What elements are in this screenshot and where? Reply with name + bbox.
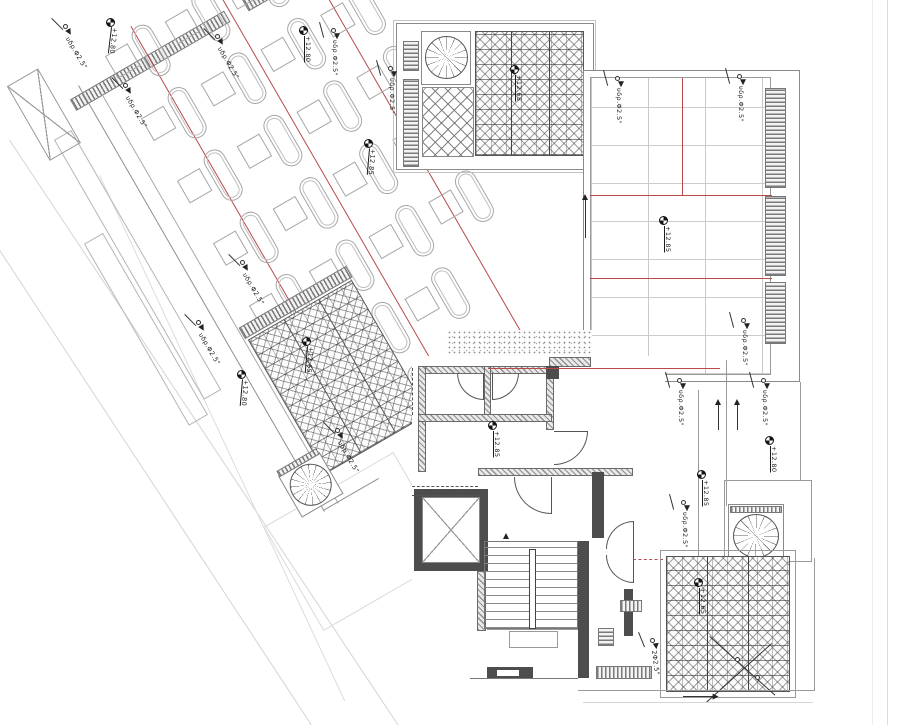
wall-dark (578, 541, 589, 678)
flow-arrow-head (734, 399, 740, 405)
wall-dark (624, 589, 633, 636)
drain-arrow-icon (684, 505, 690, 511)
sun-lounger (259, 111, 306, 170)
drain-arrow-icon (334, 33, 340, 39)
flow-arrow (585, 200, 586, 238)
deck-table (296, 99, 332, 135)
terrace-line (800, 382, 801, 480)
floor-plan-canvas: +12.80+12.80+12.85+12.65+12.85+12.80+12.… (0, 0, 900, 725)
level-label: +12.85 (702, 480, 709, 506)
drain-label: υδρ.Φ2.5" (677, 390, 684, 426)
level-marker-icon (765, 436, 774, 445)
drain-arrow-icon (740, 79, 746, 85)
drain-arrow-icon (744, 323, 750, 329)
drain-label: υδρ.Φ2.5" (737, 86, 744, 122)
pergola-grid (666, 556, 790, 692)
drain-label: υδρ.Φ2.5" (331, 40, 338, 76)
level-marker-icon (299, 26, 308, 35)
wall-hatched (418, 414, 552, 422)
boundary-line (583, 702, 813, 703)
page-edge-line (887, 0, 888, 725)
pergola-beam-line (511, 32, 512, 155)
sun-lounger (236, 208, 283, 267)
level-marker-icon (106, 18, 115, 27)
louvre-band (765, 196, 786, 276)
level-label: +12.65 (515, 75, 522, 101)
level-marker-icon (697, 470, 706, 479)
door-leaf (492, 373, 493, 400)
level-marker-icon (694, 578, 703, 587)
sun-lounger (200, 145, 247, 204)
sun-lounger (164, 83, 211, 142)
flow-arrow (737, 404, 738, 430)
level-label: +12.65 (699, 588, 706, 614)
spiral-stair (421, 31, 471, 85)
wall-hatched (484, 366, 491, 416)
deck-table (237, 133, 273, 169)
level-marker-icon (302, 337, 311, 346)
drain-arrow-icon (653, 643, 660, 650)
level-label: +12.80 (240, 379, 249, 406)
door-leaf (551, 477, 552, 514)
deck-table (356, 64, 392, 100)
flow-arrow (683, 696, 715, 697)
building-edge-line (470, 678, 578, 679)
stair-stringer (529, 549, 536, 629)
deck-table (428, 189, 464, 225)
drain-outlet-icon (196, 320, 201, 325)
louvre-band (403, 41, 419, 71)
level-label: +12.85 (367, 148, 376, 175)
louvre-band (403, 79, 419, 167)
trellis-panel (422, 87, 474, 157)
flow-arrow-head (713, 694, 719, 700)
drain-leader-line (669, 494, 674, 510)
pergola-grid (475, 31, 584, 156)
pergola-beam-line (707, 557, 708, 691)
dashed-line (412, 495, 478, 496)
drain-outlet-icon (755, 675, 760, 680)
spiral-stair-icon (425, 36, 468, 79)
louvre-band (598, 628, 614, 646)
deck-table (260, 37, 296, 73)
drain-label: υδρ.Φ2.5" (741, 330, 748, 366)
dashed-line (412, 486, 478, 487)
drain-label: υδρ.Φ2.5" (761, 390, 768, 426)
drain-arrow-icon (391, 71, 397, 77)
level-marker-icon (237, 370, 246, 379)
drain-outlet-icon (650, 638, 655, 643)
louvre-band (620, 600, 642, 612)
boundary-line (814, 558, 815, 691)
deck-table (332, 161, 368, 197)
deck-table (368, 224, 404, 260)
flow-arrow (718, 404, 719, 430)
sun-lounger (391, 201, 438, 260)
level-label: +12.80 (304, 36, 311, 62)
deck-table (273, 196, 309, 232)
roof-block (396, 23, 594, 170)
sun-lounger (451, 167, 498, 226)
red-joint-line (682, 78, 683, 195)
red-joint-line (590, 278, 772, 279)
level-marker-icon (364, 139, 373, 148)
drain-arrow-icon (680, 383, 686, 389)
drain-outlet-icon (240, 260, 245, 265)
level-marker-icon (510, 65, 519, 74)
dashed-line (412, 368, 413, 415)
stair-landing-line (487, 629, 578, 630)
drain-label: υδρ.Φ2.5" (615, 88, 622, 124)
sun-lounger (319, 76, 366, 135)
stair-landing (509, 631, 558, 648)
sun-lounger (223, 48, 270, 107)
red-joint-line (488, 368, 720, 369)
level-label: +12.85 (493, 431, 500, 457)
door-leaf (554, 431, 588, 432)
level-label: +12.80 (770, 446, 777, 472)
drain-outlet-icon (123, 83, 128, 88)
door-leaf (633, 521, 634, 583)
sun-lounger (427, 263, 474, 322)
door-leaf (483, 373, 484, 400)
drain-outlet-icon (735, 657, 740, 662)
wall-dark (592, 472, 604, 538)
level-label: +12.85 (664, 226, 671, 252)
deck-table (177, 168, 213, 204)
drain-label: υδρ.Φ2.5" (681, 512, 688, 548)
red-joint-line (590, 195, 772, 196)
page-edge-line (872, 0, 873, 725)
level-marker-icon (659, 216, 668, 225)
drain-arrow-icon (618, 81, 624, 87)
drain-outlet-icon (63, 24, 68, 29)
boundary-line (578, 690, 814, 691)
wall-opening (497, 670, 519, 676)
wall-hatched (478, 468, 633, 476)
drain-arrow-icon (764, 383, 770, 389)
sun-lounger (295, 173, 342, 232)
flow-arrow-head (582, 194, 588, 200)
flow-arrow-head (715, 399, 721, 405)
louvre-band (765, 282, 786, 344)
level-marker-icon (488, 421, 497, 430)
pergola-beam-line (549, 32, 550, 155)
deck-table (404, 286, 440, 322)
drain-outlet-icon (215, 34, 220, 39)
elevator-car (422, 497, 480, 563)
drain-leader-line (51, 18, 63, 30)
level-label: +12.65 (305, 346, 314, 373)
stair-direction-arrow (503, 533, 509, 539)
louvre-band (730, 506, 782, 513)
red-dashed-line (633, 559, 663, 560)
drain-outlet-icon (335, 428, 340, 433)
drain-label: υδρ.Φ2.5" (388, 78, 395, 114)
louvre-band (596, 666, 652, 679)
louvre-band (765, 88, 786, 188)
